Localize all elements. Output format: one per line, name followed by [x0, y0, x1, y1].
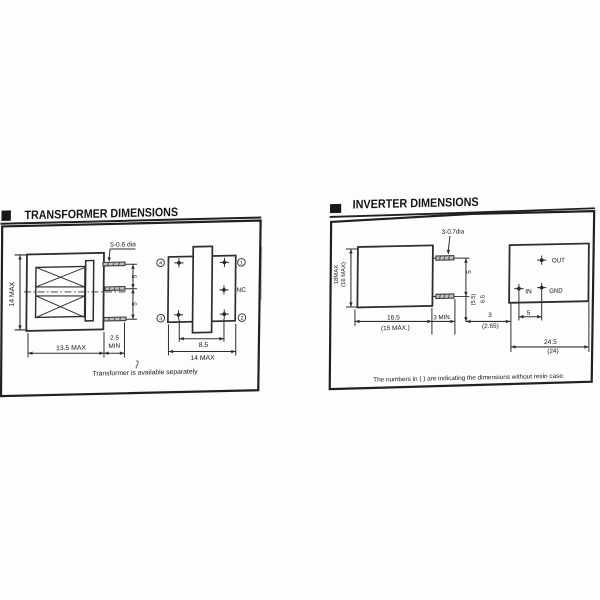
svg-text:8.5: 8.5 — [199, 342, 209, 349]
svg-text:(24): (24) — [547, 348, 558, 355]
svg-text:(15 MAX.): (15 MAX.) — [381, 325, 410, 333]
svg-text:6.5: 6.5 — [480, 294, 486, 303]
svg-text:14 MAX: 14 MAX — [190, 355, 215, 363]
svg-text:Transformer is available separ: Transformer is available separately — [92, 368, 198, 377]
svg-text:5: 5 — [527, 310, 531, 317]
svg-text:5: 5 — [132, 274, 139, 278]
svg-text:13.5 MAX: 13.5 MAX — [56, 345, 86, 353]
svg-text:5: 5 — [466, 270, 473, 274]
svg-text:5-0.6 dia: 5-0.6 dia — [110, 241, 136, 249]
svg-text:1: 1 — [240, 260, 243, 266]
svg-text:NC: NC — [237, 287, 247, 294]
svg-text:3: 3 — [488, 312, 492, 319]
svg-text:The numbers in ( ) are indicat: The numbers in ( ) are indicating the di… — [373, 373, 565, 384]
svg-text:3-0.7dia: 3-0.7dia — [442, 229, 465, 236]
svg-text:3: 3 — [159, 316, 162, 322]
svg-text:(2.65): (2.65) — [482, 323, 499, 330]
svg-text:16.5: 16.5 — [387, 314, 400, 321]
svg-text:4: 4 — [159, 261, 162, 267]
svg-text:24.5: 24.5 — [544, 339, 557, 346]
svg-text:18MAX: 18MAX — [334, 265, 340, 285]
svg-text:(16 MAX): (16 MAX) — [341, 262, 347, 287]
svg-text:14 MAX: 14 MAX — [9, 281, 16, 306]
svg-text:2: 2 — [240, 316, 243, 322]
svg-text:(5.5): (5.5) — [471, 293, 477, 305]
svg-text:IN: IN — [525, 288, 532, 295]
svg-text:MIN: MIN — [108, 343, 120, 350]
svg-text:GND: GND — [549, 288, 563, 295]
svg-text:5: 5 — [132, 302, 139, 306]
svg-text:OUT: OUT — [552, 257, 565, 264]
svg-text:INVERTER DIMENSIONS: INVERTER DIMENSIONS — [353, 195, 479, 212]
svg-text:2.5: 2.5 — [110, 335, 119, 342]
svg-text:3 MIN.: 3 MIN. — [433, 314, 451, 321]
